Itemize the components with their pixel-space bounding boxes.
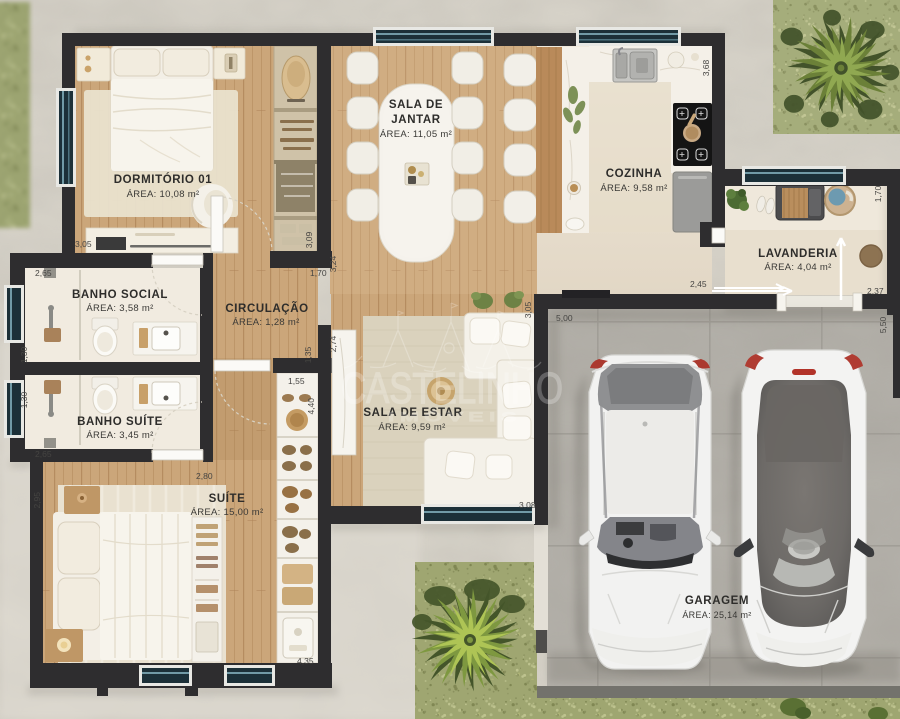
svg-text:LAVANDERIA: LAVANDERIA (758, 248, 838, 260)
svg-text:3,05: 3,05 (75, 239, 92, 249)
svg-text:DORMITÓRIO 01: DORMITÓRIO 01 (114, 173, 213, 186)
svg-text:GARAGEM: GARAGEM (685, 595, 749, 607)
svg-text:1,70: 1,70 (873, 185, 883, 202)
svg-text:ÁREA: 3,45 m²: ÁREA: 3,45 m² (86, 430, 153, 441)
svg-text:COZINHA: COZINHA (606, 168, 663, 180)
svg-text:ÁREA: 15,00 m²: ÁREA: 15,00 m² (191, 507, 264, 518)
svg-text:1,30: 1,30 (19, 391, 29, 408)
svg-text:3,68: 3,68 (701, 59, 711, 76)
svg-text:BANHO SUÍTE: BANHO SUÍTE (77, 415, 163, 428)
svg-text:1,55: 1,55 (288, 376, 305, 386)
svg-text:ÁREA: 9,58 m²: ÁREA: 9,58 m² (600, 183, 667, 194)
svg-text:1,70: 1,70 (310, 268, 327, 278)
svg-text:I M Ó V E I S: I M Ó V E I S (388, 409, 516, 424)
svg-text:ÁREA: 4,04 m²: ÁREA: 4,04 m² (764, 262, 831, 273)
svg-text:SALA DE: SALA DE (389, 99, 443, 111)
svg-text:BANHO SOCIAL: BANHO SOCIAL (72, 289, 168, 301)
svg-text:ÁREA: 25,14 m²: ÁREA: 25,14 m² (682, 610, 751, 620)
svg-text:ÁREA: 1,28 m²: ÁREA: 1,28 m² (232, 317, 299, 328)
svg-text:2,95: 2,95 (32, 492, 42, 509)
svg-text:ÁREA: 10,08 m²: ÁREA: 10,08 m² (127, 189, 200, 200)
svg-text:2,37: 2,37 (867, 286, 884, 296)
svg-text:3,08: 3,08 (519, 500, 536, 510)
svg-text:CIRCULAÇÃO: CIRCULAÇÃO (225, 302, 308, 315)
svg-text:3,05: 3,05 (523, 301, 533, 318)
svg-text:2,45: 2,45 (690, 279, 707, 289)
svg-text:CASTELINHO: CASTELINHO (341, 364, 563, 413)
svg-text:3,09: 3,09 (304, 231, 314, 248)
svg-text:JANTAR: JANTAR (391, 114, 440, 126)
svg-text:5,00: 5,00 (556, 313, 573, 323)
svg-text:2,80: 2,80 (196, 471, 213, 481)
svg-text:ÁREA: 11,05 m²: ÁREA: 11,05 m² (380, 129, 452, 140)
svg-text:2,65: 2,65 (35, 268, 52, 278)
svg-text:5,50: 5,50 (878, 316, 888, 333)
svg-text:1,30: 1,30 (19, 346, 29, 363)
svg-text:3,24: 3,24 (328, 255, 338, 272)
svg-text:2,65: 2,65 (35, 449, 52, 459)
svg-text:ÁREA: 3,58 m²: ÁREA: 3,58 m² (86, 303, 153, 314)
svg-text:1,35: 1,35 (303, 346, 313, 363)
svg-text:2,74: 2,74 (328, 335, 338, 352)
svg-text:4,40: 4,40 (306, 398, 316, 415)
svg-text:SUÍTE: SUÍTE (209, 492, 246, 505)
svg-text:4,35: 4,35 (297, 656, 314, 666)
